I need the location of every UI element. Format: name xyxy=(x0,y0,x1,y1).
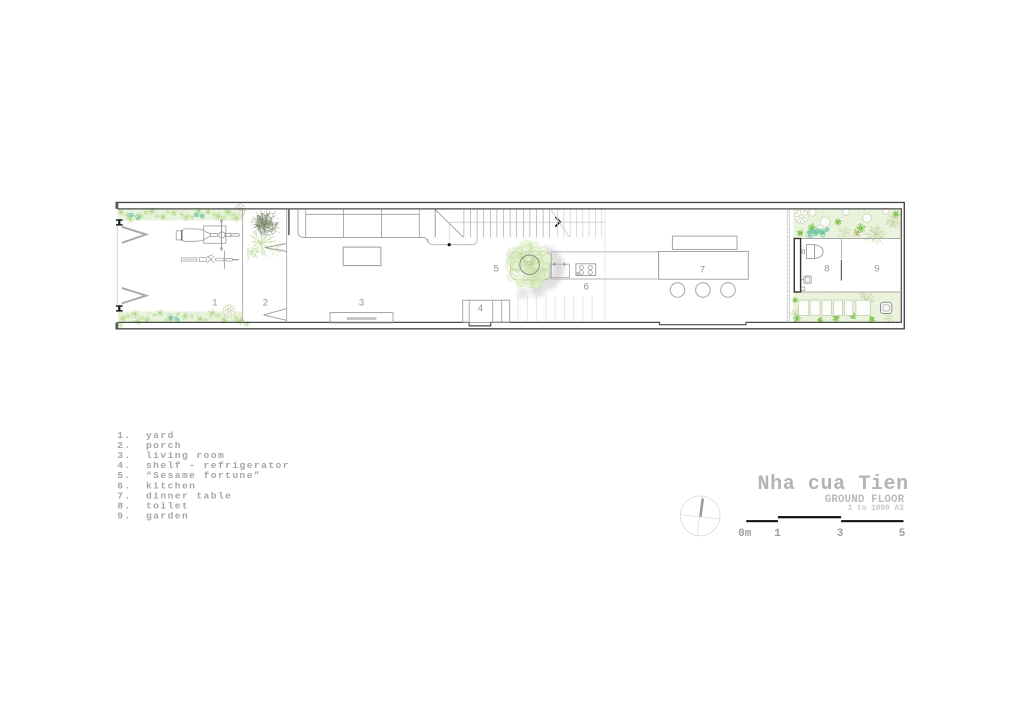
svg-text:Nha cua Tien: Nha cua Tien xyxy=(758,473,909,496)
svg-text:8: 8 xyxy=(824,264,830,275)
svg-text:4: 4 xyxy=(478,303,484,314)
svg-text:0m: 0m xyxy=(738,528,752,540)
svg-text:5: 5 xyxy=(493,264,499,275)
svg-text:2: 2 xyxy=(263,297,269,308)
svg-text:9. garden: 9. garden xyxy=(117,510,189,521)
svg-text:7: 7 xyxy=(700,265,706,276)
svg-text:1 to 1000 A3: 1 to 1000 A3 xyxy=(848,505,904,513)
svg-text:5: 5 xyxy=(899,528,906,540)
svg-text:9: 9 xyxy=(874,264,880,275)
svg-text:3: 3 xyxy=(359,297,365,308)
svg-text:6: 6 xyxy=(583,282,589,293)
svg-text:1: 1 xyxy=(212,297,218,308)
svg-text:3: 3 xyxy=(837,528,844,540)
svg-text:1: 1 xyxy=(774,528,781,540)
svg-text:GROUND FLOOR: GROUND FLOOR xyxy=(825,494,905,506)
